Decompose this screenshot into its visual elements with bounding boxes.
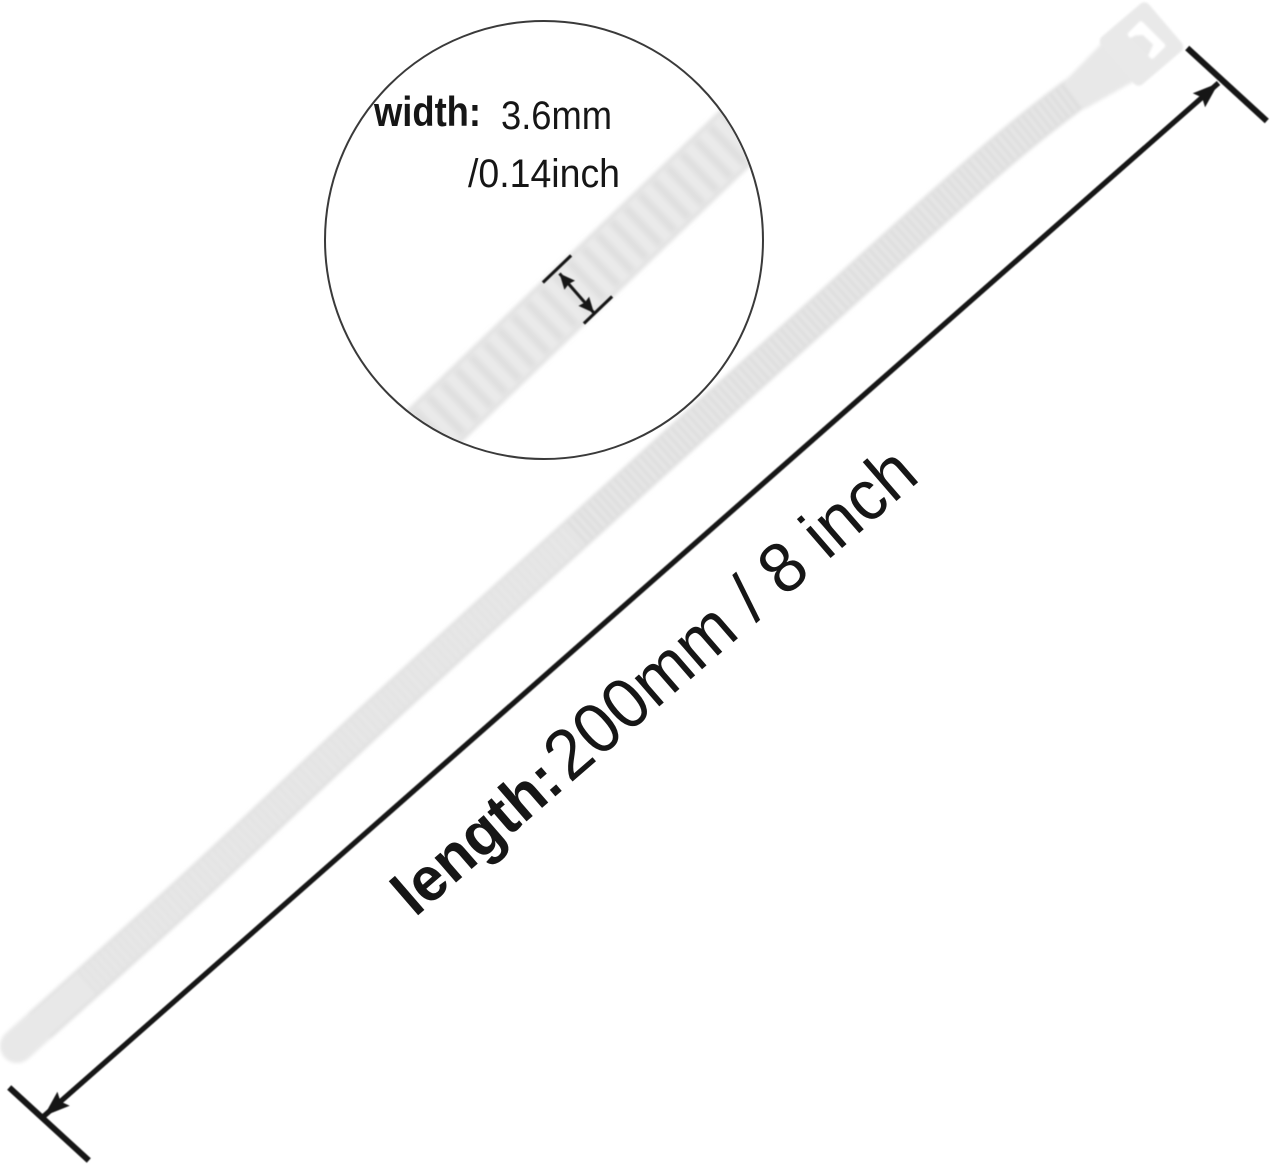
svg-text:width:: width: [373,88,481,135]
svg-text:/0.14inch: /0.14inch [468,152,620,196]
svg-text:3.6mm: 3.6mm [501,94,612,138]
